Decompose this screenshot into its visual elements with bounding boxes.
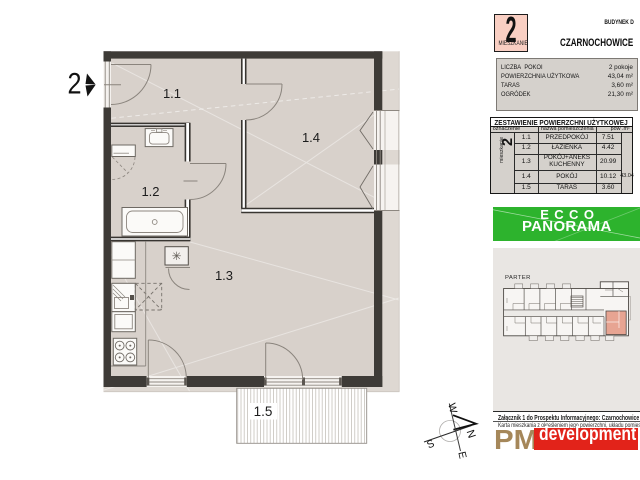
svg-text:1.4: 1.4 [302,130,320,145]
svg-text:1.1: 1.1 [163,86,181,101]
svg-text:2: 2 [68,68,82,101]
svg-text:N: N [464,429,478,440]
svg-text:E: E [455,450,468,460]
svg-text:W: W [445,402,459,414]
svg-text:1.3: 1.3 [215,268,233,283]
svg-text:S: S [425,438,436,452]
svg-text:1.2: 1.2 [141,184,159,199]
svg-text:1.5: 1.5 [254,404,273,419]
